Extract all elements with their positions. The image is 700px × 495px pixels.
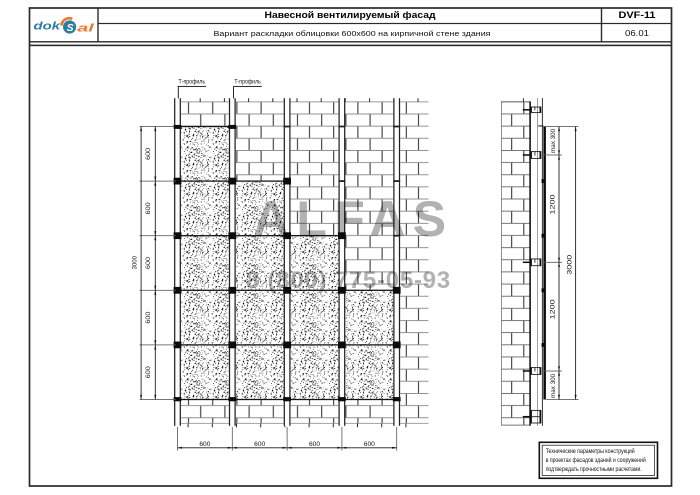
svg-text:600: 600 [254,441,266,448]
svg-text:600: 600 [145,311,152,324]
svg-text:S: S [67,23,74,34]
svg-text:Навесной вентилируемый фасад: Навесной вентилируемый фасад [265,10,436,20]
svg-text:подтверждать прочностными расч: подтверждать прочностными расчетами. [546,466,642,473]
svg-text:600: 600 [199,441,211,448]
svg-text:1200: 1200 [550,299,557,320]
svg-text:600: 600 [145,366,152,379]
svg-text:al: al [77,22,95,34]
svg-text:600: 600 [145,147,152,160]
svg-text:600: 600 [145,256,152,269]
svg-text:600: 600 [309,441,321,448]
svg-text:max 300: max 300 [550,373,557,398]
svg-text:Технические параметры конструк: Технические параметры конструкций [546,448,635,455]
svg-text:Т-профиль: Т-профиль [179,79,206,85]
svg-text:06.01: 06.01 [625,28,649,38]
svg-text:3000: 3000 [131,256,138,270]
svg-text:в проектах фасадов зданий и со: в проектах фасадов зданий и сооружений [546,457,646,464]
svg-text:max 300: max 300 [550,128,557,153]
svg-text:1200: 1200 [550,194,557,215]
svg-text:3000: 3000 [567,254,574,275]
svg-text:600: 600 [364,441,376,448]
svg-text:Т-профиль: Т-профиль [234,79,261,85]
svg-text:DVF-11: DVF-11 [619,10,657,21]
svg-text:dok: dok [34,21,62,33]
svg-text:Вариант раскладки облицовки 60: Вариант раскладки облицовки 600х600 на к… [214,29,491,38]
svg-text:600: 600 [145,202,152,215]
